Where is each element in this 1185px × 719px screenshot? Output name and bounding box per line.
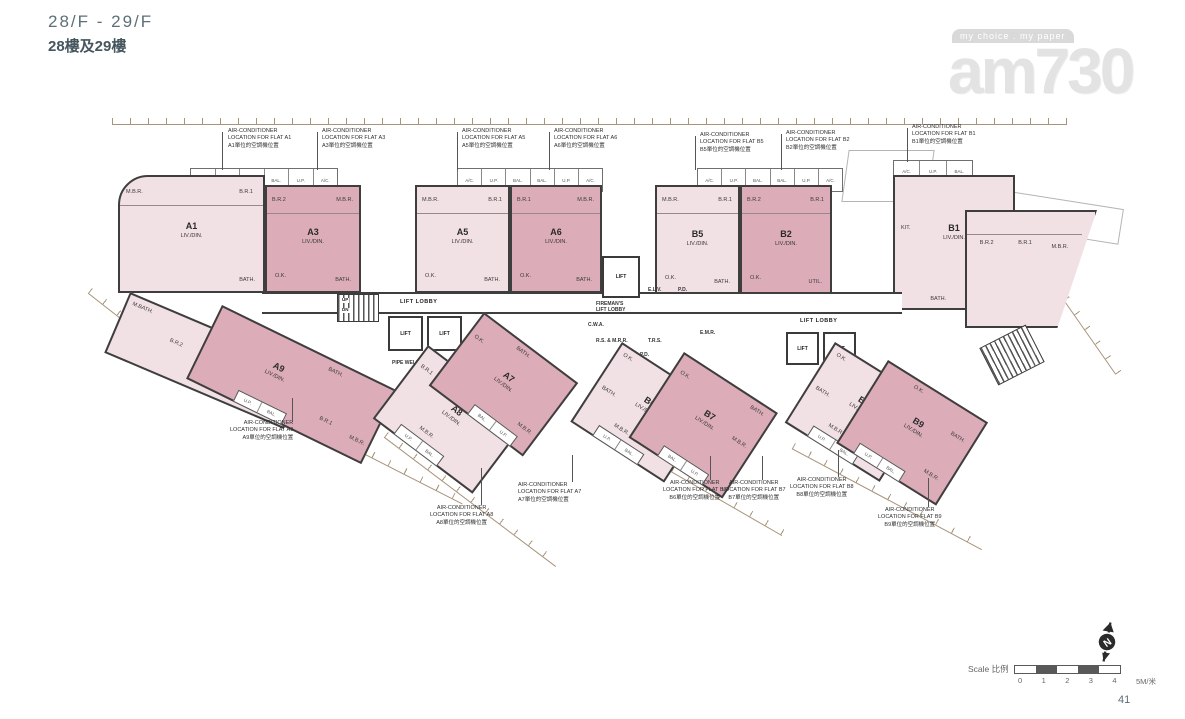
ac-label-line: A8單位的空調機位置	[430, 520, 493, 527]
room-label: O.K.	[912, 384, 925, 395]
ac-label-line: B6單位的空調機位置	[663, 495, 727, 502]
ac-label-line: A5單位的空調機位置	[462, 143, 525, 150]
cwa-label: C.W.A.	[588, 322, 604, 328]
room-label: B.R.1	[239, 189, 253, 195]
scale-tick: 1	[1042, 676, 1046, 687]
leader-line	[549, 132, 550, 170]
north-arrow-icon: N	[1085, 620, 1129, 664]
room-label: B.R.1	[1018, 240, 1032, 246]
ac-label-line: AIR-CONDITIONER	[722, 480, 786, 487]
ac-label-line: LOCATION FOR FLAT B7	[722, 487, 786, 494]
leader-line	[907, 128, 908, 162]
lift-2: LIFT	[427, 316, 462, 351]
ac-label-line: LOCATION FOR FLAT A9	[230, 427, 293, 434]
ac-label-flat-b8: AIR-CONDITIONER LOCATION FOR FLAT B8 B8單…	[790, 477, 854, 499]
living-dining-label: LIV./DIN.	[120, 233, 263, 239]
floor-plan-page: 28/F - 29/F 28樓及29樓 my choice . my paper…	[0, 0, 1185, 719]
flat-A5: M.B.R. B.R.1 A5 LIV./DIN. O.K. BATH.	[415, 185, 510, 293]
ac-label-line: LOCATION FOR FLAT B6	[663, 487, 727, 494]
ac-label-line: LOCATION FOR FLAT A1	[228, 135, 291, 142]
scale-label: Scale 比例	[968, 663, 1009, 675]
ac-label-line: A7單位的空調機位置	[518, 497, 581, 504]
ac-label-line: AIR-CONDITIONER	[228, 128, 291, 135]
ac-label-flat-a7: AIR-CONDITIONER LOCATION FOR FLAT A7 A7單…	[518, 482, 581, 504]
room-label: B.R.1	[718, 197, 732, 203]
ac-label-line: AIR-CONDITIONER	[518, 482, 581, 489]
room-label: BATH.	[576, 277, 592, 283]
leader-line	[928, 478, 929, 507]
room-label: B.R.1	[488, 197, 502, 203]
room-label: M.B.R.	[577, 197, 594, 203]
flat-name: A6	[512, 227, 600, 237]
ac-label-line: LOCATION FOR FLAT A5	[462, 135, 525, 142]
ac-label-flat-b1: AIR-CONDITIONER LOCATION FOR FLAT B1 B1單…	[912, 124, 976, 146]
room-label: BATH.	[930, 296, 946, 302]
ac-label-flat-a9: AIR-CONDITIONER LOCATION FOR FLAT A9 A9單…	[230, 420, 293, 442]
room-label: M.BATH.	[131, 301, 154, 315]
ac-label-flat-a3: AIR-CONDITIONER LOCATION FOR FLAT A3 A3單…	[322, 128, 385, 150]
room-label: B.R.1	[318, 415, 333, 426]
ac-label-line: A6單位的空調機位置	[554, 143, 617, 150]
ac-label-line: B1單位的空調機位置	[912, 139, 976, 146]
room-label: O.K.	[425, 273, 436, 279]
ac-label-line: LOCATION FOR FLAT B8	[790, 484, 854, 491]
scale-bar-graphic	[1014, 665, 1121, 674]
living-dining-label: LIV./DIN.	[267, 239, 359, 245]
ac-label-line: B2單位的空調機位置	[786, 145, 850, 152]
ac-label-flat-b5: AIR-CONDITIONER LOCATION FOR FLAT B5 B5單…	[700, 132, 764, 154]
ac-label-line: B8單位的空調機位置	[790, 492, 854, 499]
ac-label-line: B9單位的空調機位置	[878, 522, 942, 529]
ac-label-line: A9單位的空調機位置	[230, 435, 293, 442]
room-label: B.R.1	[419, 364, 434, 377]
ac-label-line: LOCATION FOR FLAT B5	[700, 139, 764, 146]
room-label: BATH.	[484, 277, 500, 283]
ac-label-line: AIR-CONDITIONER	[430, 505, 493, 512]
am730-logo: am730	[948, 44, 1183, 98]
floor-range-zh: 28樓及29樓	[48, 35, 153, 56]
room-label: M.B.R.	[1051, 244, 1068, 250]
living-dining-label: LIV./DIN.	[742, 241, 830, 247]
room-label: O.K.	[835, 352, 848, 363]
scale-segment	[1036, 666, 1057, 673]
room-label: M.B.R.	[336, 197, 353, 203]
room-label: M.B.R.	[662, 197, 679, 203]
ac-label-flat-b7: AIR-CONDITIONER LOCATION FOR FLAT B7 B7單…	[722, 480, 786, 502]
lift-4: LIFT	[786, 332, 819, 365]
emr-label: E.M.R.	[700, 330, 715, 336]
room-label: O.K.	[473, 334, 485, 345]
room-label: BATH.	[515, 345, 531, 359]
room-label: M.B.R.	[126, 189, 143, 195]
flat-name: A5	[417, 227, 508, 237]
ac-label-line: A1單位的空調機位置	[228, 143, 291, 150]
ac-label-flat-a1: AIR-CONDITIONER LOCATION FOR FLAT A1 A1單…	[228, 128, 291, 150]
room-label: O.K.	[275, 273, 286, 279]
room-label: B.R.1	[517, 197, 531, 203]
flat-name: B9	[867, 388, 969, 457]
ac-label-line: AIR-CONDITIONER	[462, 128, 525, 135]
room-label: BATH.	[327, 366, 344, 378]
scale-tick: 2	[1065, 676, 1069, 687]
room-label: O.K.	[622, 352, 635, 363]
ac-label-line: AIR-CONDITIONER	[878, 507, 942, 514]
leader-line	[710, 456, 711, 480]
ac-label-line: AIR-CONDITIONER	[230, 420, 293, 427]
room-label: O.K.	[520, 273, 531, 279]
scale-bar: Scale 比例	[968, 663, 1121, 675]
ac-label-line: LOCATION FOR FLAT A7	[518, 489, 581, 496]
living-dining-label: LIV./DIN.	[657, 241, 738, 247]
lift-3: LIFT	[602, 256, 640, 298]
ac-label-line: LOCATION FOR FLAT B1	[912, 131, 976, 138]
ac-label-flat-a8: AIR-CONDITIONER LOCATION FOR FLAT A8 A8單…	[430, 505, 493, 527]
flat-A3: B.R.2 M.B.R. A3 LIV./DIN. O.K. BATH.	[265, 185, 361, 293]
room-label: O.K.	[679, 370, 692, 381]
room-label: B.R.2	[272, 197, 286, 203]
room-label: BATH.	[714, 279, 730, 285]
staircase-left: UP DN	[337, 294, 379, 322]
page-number: 41	[1118, 694, 1130, 706]
room-label: UTIL.	[809, 279, 822, 285]
leader-line	[317, 132, 318, 170]
leader-line	[781, 134, 782, 170]
room-label: BATH.	[239, 277, 255, 283]
flat-B5: M.B.R. B.R.1 B5 LIV./DIN. O.K. BATH.	[655, 185, 740, 295]
scale-segment	[1057, 666, 1078, 673]
ac-label-flat-a6: AIR-CONDITIONER LOCATION FOR FLAT A6 A6單…	[554, 128, 617, 150]
fireman-lobby-label-line2: LIFT LOBBY	[596, 307, 625, 313]
flat-name: A3	[267, 227, 359, 237]
staircase-right	[979, 324, 1044, 385]
flat-name: B7	[662, 382, 758, 449]
living-dining-label: LIV./DIN.	[417, 239, 508, 245]
flat-A1: M.B.R. B.R.1 A1 LIV./DIN. BATH.	[118, 175, 265, 293]
leader-line	[762, 456, 763, 480]
flat-name: A1	[120, 221, 263, 231]
ac-label-line: AIR-CONDITIONER	[912, 124, 976, 131]
flat-name: A9	[174, 313, 384, 422]
room-label: M.B.R.	[922, 468, 939, 482]
scale-segment	[1015, 666, 1036, 673]
ac-label-line: AIR-CONDITIONER	[322, 128, 385, 135]
scale-tick: 0	[1018, 676, 1022, 687]
ac-label-flat-b9: AIR-CONDITIONER LOCATION FOR FLAT B9 B9單…	[878, 507, 942, 529]
ac-label-line: AIR-CONDITIONER	[700, 132, 764, 139]
ac-label-line: A3單位的空調機位置	[322, 143, 385, 150]
scale-segment	[1099, 666, 1120, 673]
lift-lobby-left-label: LIFT LOBBY	[400, 299, 437, 305]
flat-name: B5	[657, 229, 738, 239]
room-label: B.R.2	[747, 197, 761, 203]
ac-label-flat-b2: AIR-CONDITIONER LOCATION FOR FLAT B2 B2單…	[786, 130, 850, 152]
leader-line	[222, 132, 223, 170]
leader-line	[838, 450, 839, 477]
ac-label-flat-a5: AIR-CONDITIONER LOCATION FOR FLAT A5 A5單…	[462, 128, 525, 150]
scale-tick: 4	[1112, 676, 1116, 687]
leader-line	[292, 398, 293, 422]
leader-line	[572, 455, 573, 482]
scale-tick: 5M/米	[1136, 676, 1156, 687]
lift-lobby-right-label: LIFT LOBBY	[800, 318, 837, 324]
room-label: M.B.R.	[422, 197, 439, 203]
room-label: M.B.R.	[516, 421, 533, 436]
page-title-block: 28/F - 29/F 28樓及29樓	[48, 12, 153, 56]
lift-1: LIFT	[388, 316, 423, 351]
stair-up-label: UP	[341, 298, 349, 303]
room-label: M.B.R.	[348, 434, 366, 447]
ac-label-line: LOCATION FOR FLAT A8	[430, 512, 493, 519]
ac-label-line: B7單位的空調機位置	[722, 495, 786, 502]
leader-line	[695, 136, 696, 170]
scale-segment	[1078, 666, 1099, 673]
room-label: B.R.1	[810, 197, 824, 203]
flat-A6: B.R.1 M.B.R. A6 LIV./DIN. O.K. BATH.	[510, 185, 602, 293]
ac-label-line: LOCATION FOR FLAT A3	[322, 135, 385, 142]
living-dining-label: LIV./DIN.	[657, 392, 751, 456]
ac-label-flat-b6: AIR-CONDITIONER LOCATION FOR FLAT B6 B6單…	[663, 480, 727, 502]
living-dining-label: LIV./DIN.	[512, 239, 600, 245]
flat-name: B2	[742, 229, 830, 239]
room-label: BATH.	[335, 277, 351, 283]
ac-label-line: AIR-CONDITIONER	[786, 130, 850, 137]
leader-line	[481, 468, 482, 505]
ac-label-line: LOCATION FOR FLAT B2	[786, 137, 850, 144]
ac-label-line: LOCATION FOR FLAT B9	[878, 514, 942, 521]
leader-line	[457, 132, 458, 170]
am730-watermark: my choice . my paper am730	[948, 26, 1183, 98]
room-label: B.R.2	[169, 337, 184, 348]
elv-room-label: E.L.V.	[648, 287, 661, 293]
ac-label-line: LOCATION FOR FLAT A6	[554, 135, 617, 142]
flat-B2: B.R.2 B.R.1 B2 LIV./DIN. O.K. UTIL.	[740, 185, 832, 295]
scale-tick: 3	[1089, 676, 1093, 687]
room-label: O.K.	[665, 275, 676, 281]
ac-label-line: AIR-CONDITIONER	[663, 480, 727, 487]
stair-down-label: DN	[341, 308, 350, 313]
room-label: B.R.2	[980, 240, 994, 246]
ac-label-line: B5單位的空調機位置	[700, 147, 764, 154]
trs-label: T.R.S.	[648, 338, 662, 344]
scale-tick-labels: 0 1 2 3 4 5M/米	[1018, 676, 1156, 687]
ac-label-line: AIR-CONDITIONER	[554, 128, 617, 135]
floor-range-en: 28/F - 29/F	[48, 12, 153, 32]
pipe-duct-label: P.D.	[678, 287, 687, 293]
room-label: BATH.	[749, 404, 766, 418]
room-label: O.K.	[750, 275, 761, 281]
ac-label-line: AIR-CONDITIONER	[790, 477, 854, 484]
